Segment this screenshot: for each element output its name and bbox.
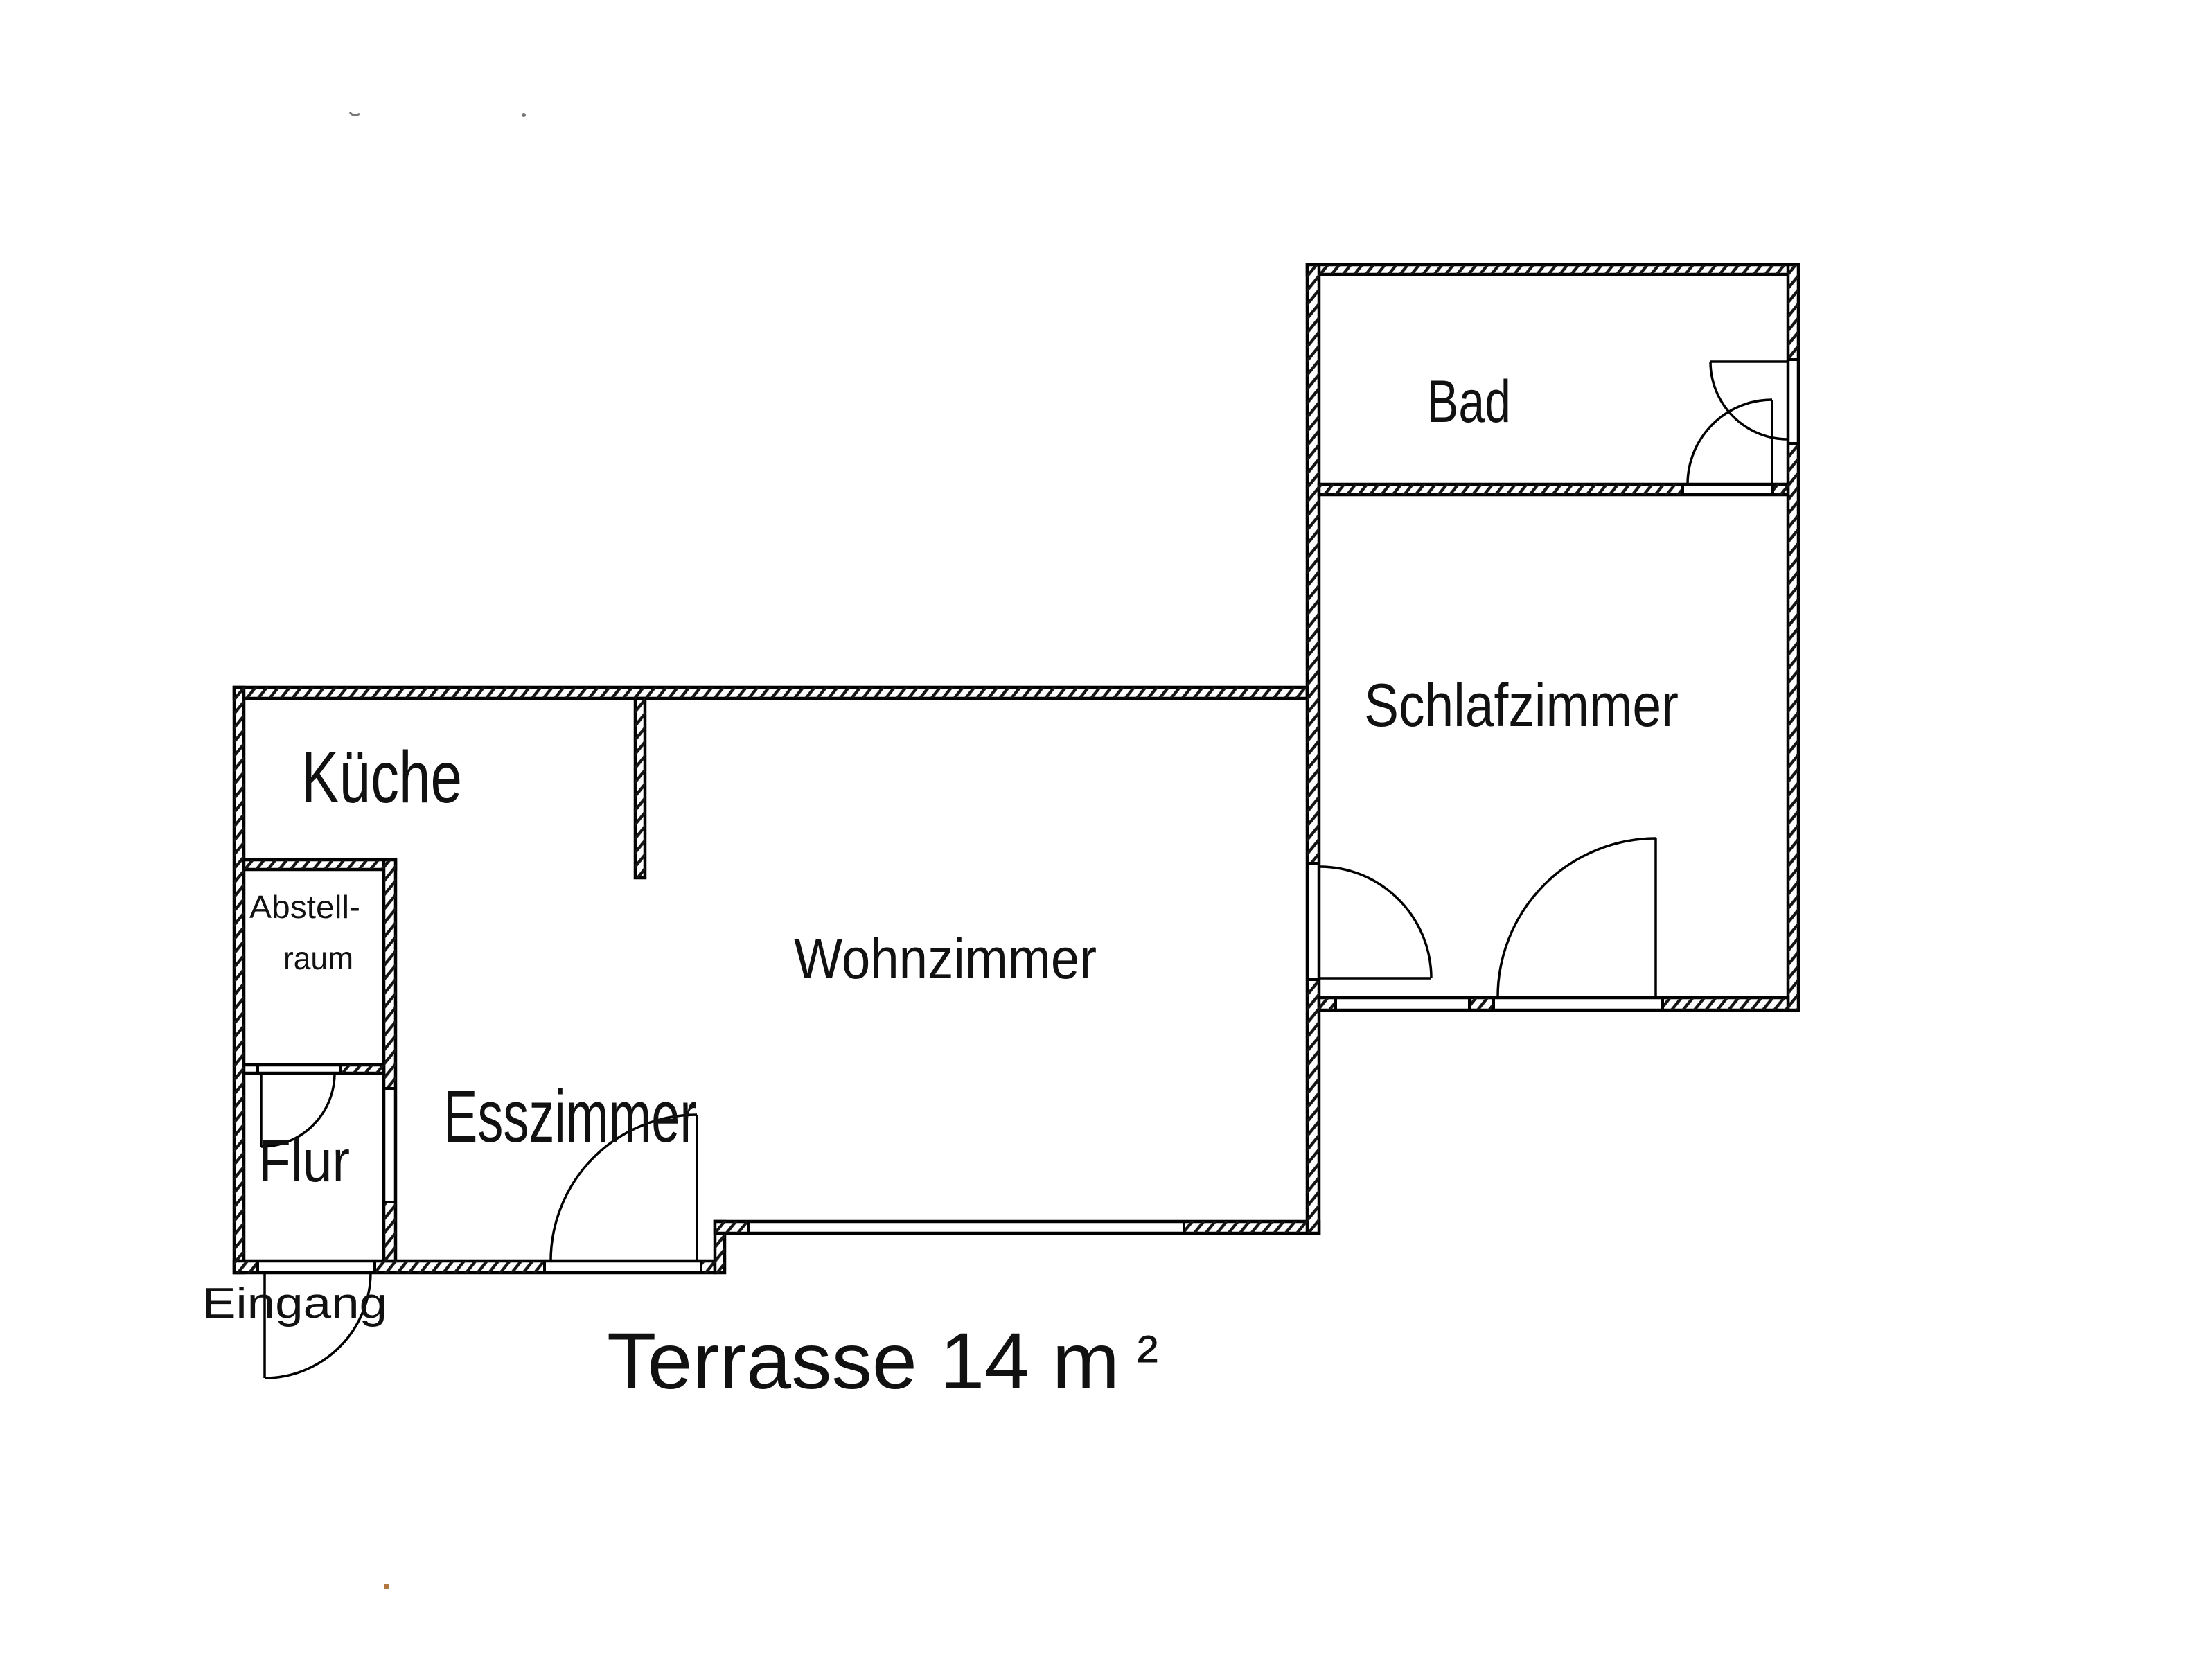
svg-text:raum: raum xyxy=(283,940,353,976)
svg-text:²: ² xyxy=(1137,1322,1158,1394)
svg-text:Wohnzimmer: Wohnzimmer xyxy=(794,926,1097,991)
svg-text:Esszimmer: Esszimmer xyxy=(443,1075,697,1158)
svg-text:Abstell-: Abstell- xyxy=(249,889,360,925)
svg-text:Eingang: Eingang xyxy=(202,1280,387,1327)
svg-text:Terrasse 14 m: Terrasse 14 m xyxy=(607,1317,1120,1406)
svg-text:Schlafzimmer: Schlafzimmer xyxy=(1364,671,1679,739)
svg-text:Flur: Flur xyxy=(258,1129,350,1194)
svg-text:Küche: Küche xyxy=(301,736,462,818)
svg-text:Bad: Bad xyxy=(1427,369,1511,435)
